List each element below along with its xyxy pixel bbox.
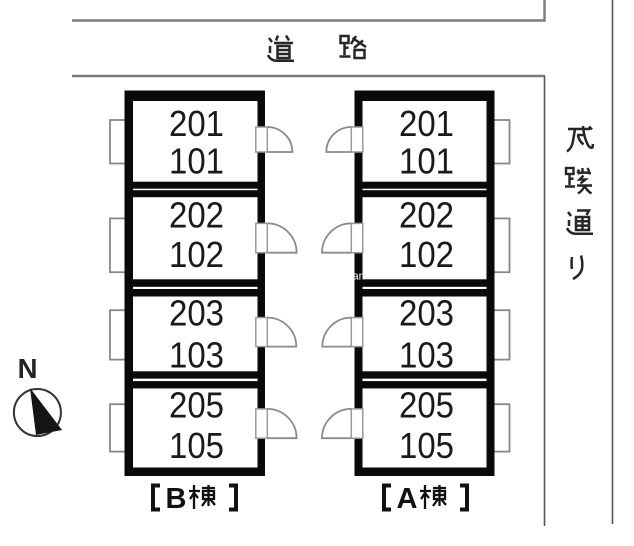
svg-text:203: 203: [399, 293, 454, 334]
svg-text:B: B: [166, 483, 187, 515]
svg-text:101: 101: [399, 141, 454, 182]
svg-text:an: an: [353, 271, 365, 283]
svg-text:102: 102: [169, 234, 224, 275]
svg-text:201: 201: [169, 103, 224, 144]
svg-text:205: 205: [169, 385, 224, 426]
svg-text:203: 203: [169, 293, 224, 334]
svg-text:102: 102: [399, 234, 454, 275]
svg-text:103: 103: [399, 335, 454, 376]
svg-text:205: 205: [399, 385, 454, 426]
svg-text:A: A: [397, 483, 418, 515]
svg-text:202: 202: [169, 195, 224, 236]
svg-text:N: N: [18, 353, 38, 384]
svg-text:202: 202: [399, 195, 454, 236]
svg-text:101: 101: [169, 141, 224, 182]
svg-text:105: 105: [399, 425, 454, 466]
svg-text:103: 103: [169, 335, 224, 376]
svg-text:201: 201: [399, 103, 454, 144]
svg-text:105: 105: [169, 425, 224, 466]
